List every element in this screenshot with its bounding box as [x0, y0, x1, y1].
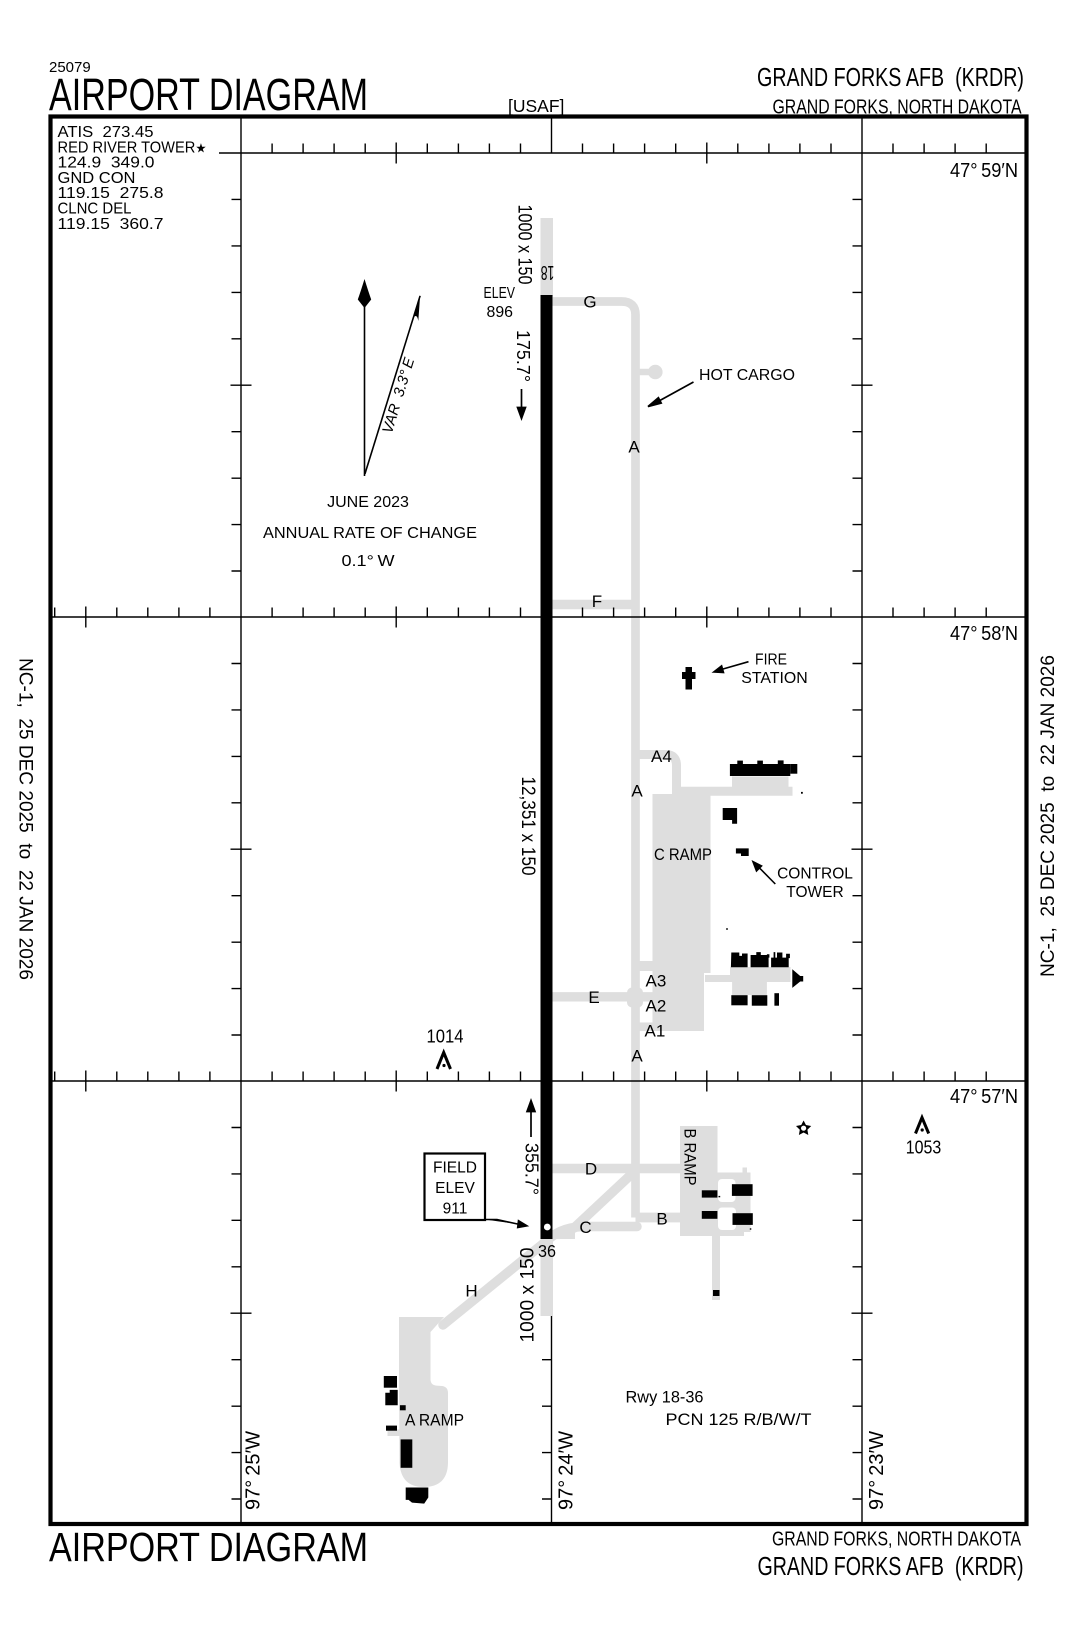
svg-text:0.1° W: 0.1° W — [342, 553, 396, 570]
svg-text:12,351 x 150: 12,351 x 150 — [517, 777, 538, 876]
svg-text:A: A — [631, 782, 643, 801]
svg-text:C RAMP: C RAMP — [654, 845, 712, 864]
svg-text:ELEV: ELEV — [435, 1180, 475, 1197]
svg-text:NC-1, 25 DEC 2025 to 22 JAN: NC-1, 25 DEC 2025 to 22 JAN 2026 — [15, 658, 37, 980]
svg-text:NC-1, 25 DEC 2025 to 22 JAN: NC-1, 25 DEC 2025 to 22 JAN 2026 — [1037, 655, 1059, 977]
svg-text:GRAND FORKS AFB (KRDR): GRAND FORKS AFB (KRDR) — [758, 1553, 1024, 1581]
svg-text:GRAND FORKS AFB (KRDR): GRAND FORKS AFB (KRDR) — [757, 64, 1024, 92]
svg-text:TOWER: TOWER — [786, 884, 843, 901]
svg-text:355.7°: 355.7° — [522, 1143, 543, 1195]
svg-text:Rwy 18-36: Rwy 18-36 — [626, 1389, 704, 1407]
svg-text:FIRE: FIRE — [755, 652, 787, 669]
svg-text:97° 24′W: 97° 24′W — [556, 1431, 578, 1510]
svg-text:36: 36 — [538, 1241, 556, 1261]
svg-text:STATION: STATION — [741, 670, 808, 687]
svg-text:AIRPORT DIAGRAM: AIRPORT DIAGRAM — [49, 69, 368, 120]
svg-text:A1: A1 — [645, 1022, 666, 1041]
svg-text:GRAND FORKS, NORTH DAKOTA: GRAND FORKS, NORTH DAKOTA — [772, 1529, 1022, 1551]
svg-text:FIELD: FIELD — [433, 1160, 477, 1177]
svg-text:47° 57′N: 47° 57′N — [950, 1086, 1018, 1108]
svg-text:E: E — [588, 988, 599, 1007]
svg-text:A4: A4 — [651, 747, 672, 766]
svg-text:A3: A3 — [646, 972, 667, 991]
svg-text:18: 18 — [541, 261, 555, 284]
svg-text:B: B — [656, 1210, 667, 1229]
svg-text:PCN 125 R/B/W/T: PCN 125 R/B/W/T — [666, 1411, 812, 1429]
svg-text:175.7°: 175.7° — [513, 330, 534, 382]
svg-text:1000 x 150: 1000 x 150 — [518, 1248, 539, 1343]
svg-text:1053: 1053 — [906, 1138, 942, 1158]
svg-text:97° 23′W: 97° 23′W — [866, 1431, 888, 1510]
svg-text:ELEV: ELEV — [484, 285, 516, 302]
svg-text:A RAMP: A RAMP — [405, 1411, 464, 1430]
svg-text:911: 911 — [443, 1201, 468, 1218]
svg-text:ANNUAL RATE OF CHANGE: ANNUAL RATE OF CHANGE — [263, 525, 477, 542]
svg-text:C: C — [579, 1218, 591, 1237]
svg-text:119.15 360.7: 119.15 360.7 — [58, 216, 164, 233]
svg-text:A2: A2 — [646, 996, 667, 1015]
svg-text:1000 x 150: 1000 x 150 — [514, 205, 535, 285]
svg-text:HOT CARGO: HOT CARGO — [699, 367, 795, 384]
svg-text:A: A — [628, 438, 640, 457]
svg-text:AIRPORT DIAGRAM: AIRPORT DIAGRAM — [49, 1524, 368, 1570]
svg-text:A: A — [631, 1047, 643, 1066]
svg-text:CONTROL: CONTROL — [777, 866, 853, 883]
svg-text:47° 58′N: 47° 58′N — [950, 623, 1018, 645]
svg-text:97° 25′W: 97° 25′W — [243, 1431, 265, 1510]
svg-text:H: H — [465, 1282, 477, 1301]
svg-text:896: 896 — [487, 304, 514, 321]
svg-text:1014: 1014 — [427, 1027, 464, 1047]
svg-text:G: G — [583, 293, 596, 312]
svg-text:[USAF]: [USAF] — [508, 96, 564, 116]
svg-text:D: D — [585, 1160, 597, 1179]
svg-text:JUNE 2023: JUNE 2023 — [327, 494, 409, 511]
svg-text:F: F — [592, 592, 602, 611]
svg-text:B RAMP: B RAMP — [681, 1129, 700, 1186]
svg-text:47° 59′N: 47° 59′N — [950, 160, 1018, 182]
